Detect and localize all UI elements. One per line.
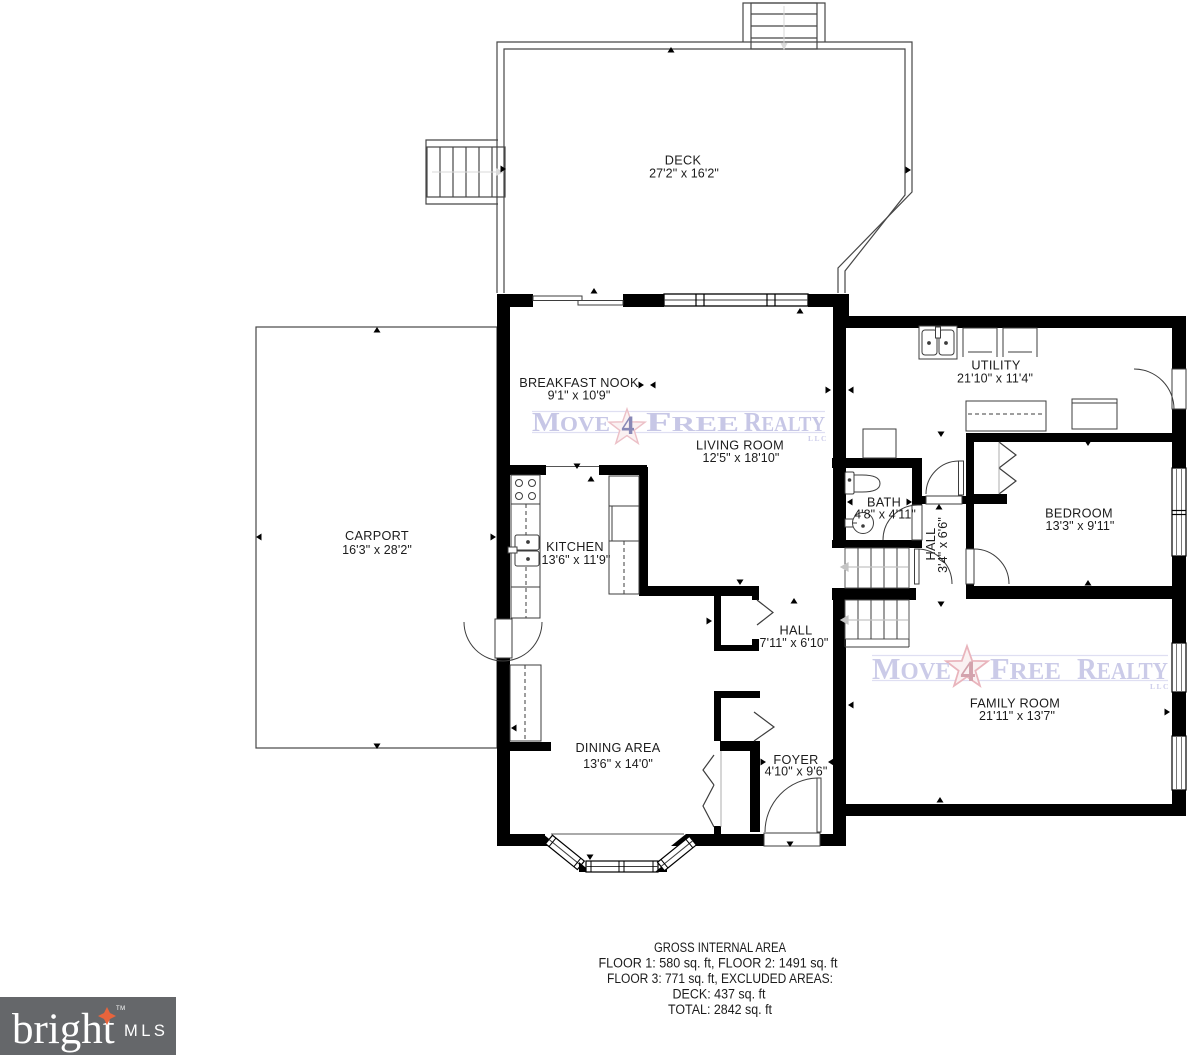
svg-text:GROSS INTERNAL AREA: GROSS INTERNAL AREA — [654, 940, 786, 955]
svg-text:9'1" x 10'9": 9'1" x 10'9" — [548, 389, 611, 403]
svg-text:13'6" x 11'9": 13'6" x 11'9" — [542, 553, 611, 567]
svg-text:LLC: LLC — [1150, 682, 1170, 691]
svg-text:DINING AREA: DINING AREA — [575, 741, 660, 755]
svg-text:UTILITY: UTILITY — [971, 359, 1021, 373]
svg-text:12'5" x 18'10": 12'5" x 18'10" — [703, 451, 780, 465]
svg-text:CARPORT: CARPORT — [345, 529, 409, 543]
svg-text:16'3" x 28'2": 16'3" x 28'2" — [342, 543, 412, 557]
svg-text:4'10" x 9'6": 4'10" x 9'6" — [765, 765, 828, 779]
svg-text:3'4" x 6'6": 3'4" x 6'6" — [936, 517, 950, 573]
svg-text:REALTY: REALTY — [744, 407, 825, 437]
svg-text:bright: bright — [12, 1006, 115, 1053]
svg-text:TOTAL: 2842 sq. ft: TOTAL: 2842 sq. ft — [668, 1002, 772, 1017]
svg-text:MLS: MLS — [124, 1022, 168, 1040]
svg-text:27'2" x 16'2": 27'2" x 16'2" — [649, 167, 719, 181]
svg-text:13'3" x 9'11": 13'3" x 9'11" — [1046, 519, 1115, 533]
svg-text:DECK: 437 sq. ft: DECK: 437 sq. ft — [673, 987, 766, 1002]
svg-text:FREE: FREE — [646, 407, 739, 437]
svg-text:DECK: DECK — [665, 154, 702, 168]
svg-text:4: 4 — [622, 411, 635, 440]
svg-text:KITCHEN: KITCHEN — [546, 540, 604, 554]
svg-text:21'10" x 11'4": 21'10" x 11'4" — [957, 372, 1033, 386]
svg-text:21'11" x 13'7": 21'11" x 13'7" — [979, 709, 1055, 723]
svg-text:7'11" x 6'10": 7'11" x 6'10" — [760, 636, 829, 650]
svg-text:TM: TM — [116, 1006, 126, 1012]
svg-text:LLC: LLC — [808, 434, 828, 443]
svg-text:MOVE: MOVE — [532, 407, 610, 437]
svg-text:4: 4 — [961, 655, 976, 688]
svg-text:4'8" x 4'11": 4'8" x 4'11" — [854, 508, 916, 522]
svg-text:FLOOR 3: 771 sq. ft, EXCLUDED: FLOOR 3: 771 sq. ft, EXCLUDED AREAS: — [607, 971, 833, 986]
svg-text:13'6" x 14'0": 13'6" x 14'0" — [583, 757, 653, 771]
svg-text:FLOOR 1: 580 sq. ft, FLOOR 2:: FLOOR 1: 580 sq. ft, FLOOR 2: 1491 sq. f… — [599, 956, 838, 971]
